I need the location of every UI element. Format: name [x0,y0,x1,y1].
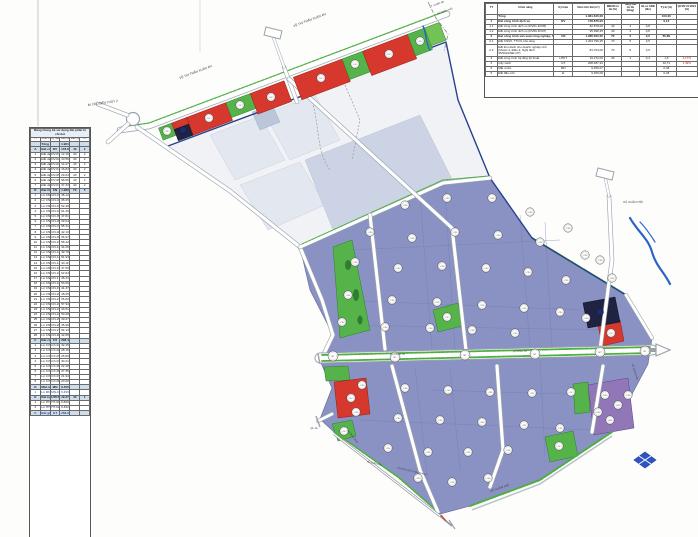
lot-symbol: CX [236,101,244,109]
table-cell [657,45,676,57]
lot-symbol: CN [478,418,486,426]
table-cell: GT [50,411,60,416]
svg-text:DV: DV [269,97,273,99]
lot-symbol: CN [478,301,486,309]
lot-symbol: CN [482,264,490,272]
svg-text:DV: DV [349,398,353,400]
svg-text:CN: CN [530,393,534,395]
lot-symbol: CN [520,421,528,429]
svg-text:CN: CN [522,425,526,427]
lot-symbol: CN [488,194,496,202]
lot-symbol: DN [594,408,602,416]
svg-text:CN: CN [598,260,602,262]
svg-text:DV: DV [319,78,323,80]
lot-symbol: DV [607,329,615,337]
table-cell: 81.704,00 [573,45,604,57]
table-cell: Đất giao thông [40,411,50,416]
lot-symbol: NT [460,350,470,360]
lot-symbol: CN [581,251,589,259]
svg-text:CN: CN [470,330,474,332]
svg-text:CX: CX [353,64,357,66]
lot-symbol: CN [401,384,409,392]
lot-statistics-table: Bảng thống kê sử dụng đất phân lô chi ti… [29,127,91,537]
landuse-balance-table: TTChức năngKý hiệuDiện tích đất (m²)MĐXD… [484,2,698,98]
table-cell: 9.456,00 [573,72,604,77]
table-cell: 5 [622,45,640,57]
svg-text:DV: DV [387,54,391,56]
svg-text:CN: CN [564,280,568,282]
svg-text:CN: CN [403,388,407,390]
lot-symbol: DV [385,50,393,58]
table-cell [80,411,90,416]
top-col-header: Hệ số SDĐ (lần) [639,4,657,15]
lot-symbol: CN [366,228,374,236]
lot-symbol: NT [640,346,650,356]
lot-symbol: CN [401,201,409,209]
svg-text:CN: CN [403,205,407,207]
lot-symbol: CN [464,448,472,456]
svg-text:CN: CN [526,272,530,274]
svg-text:CX: CX [165,131,169,133]
lot-symbol: DV [205,114,213,122]
lot-symbol: CN [526,208,534,216]
svg-text:CN: CN [490,198,494,200]
lot-symbol: CN [528,389,536,397]
lot-symbol: CN [451,228,459,236]
svg-text:CN: CN [435,302,439,304]
top-col-header: Tầng cao tối đa (tầng) [622,4,640,15]
lot-symbol: CN [596,256,604,264]
lot-symbol: CN [520,304,528,312]
svg-text:CN: CN [396,418,400,420]
table-cell [554,45,573,57]
svg-text:CN: CN [484,268,488,270]
map-label: VỀ THỊ TRẤN XUÂN AN [292,11,327,28]
lot-symbol: CN [494,231,502,239]
svg-text:CN: CN [440,266,444,268]
lot-symbol: CX [567,388,575,396]
table-cell: 2.2 [486,45,498,57]
lot-symbol: CN [351,258,359,266]
svg-text:CN: CN [566,228,570,230]
lot-symbol: DV [317,74,325,82]
lot-symbol: CN [408,234,416,242]
lot-symbol: CN [344,291,352,299]
svg-text:CX: CX [342,431,346,433]
lot-symbol: CN [443,194,451,202]
lot-symbol: DN [614,401,622,409]
lot-symbol: CN [394,264,402,272]
lot-symbol: CN [564,224,572,232]
top-table-header: TTChức năngKý hiệuDiện tích đất (m²)MĐXD… [486,4,698,15]
lot-symbol: CN [448,478,456,486]
svg-text:DN: DN [616,405,620,407]
table-row: 2.2Đất khu dành cho doanh nghiệp nhỏ (kh… [486,45,698,57]
lot-symbol: CN [394,414,402,422]
svg-text:CN: CN [528,212,532,214]
lot-symbol: CN [352,408,360,416]
table-cell [622,72,640,77]
lot-symbol: CN [358,381,366,389]
svg-text:CX: CX [238,105,242,107]
svg-text:CN: CN [558,312,562,314]
lot-symbol: CX [416,37,424,45]
lot-symbol: CN [438,262,446,270]
table-cell: Đất khu dành cho doanh nghiệp nhỏ (khoản… [497,45,553,57]
svg-text:CN: CN [396,268,400,270]
table-cell: Đất đầu mối [497,72,553,77]
lot-symbol: CN [524,268,532,276]
top-col-header: TT [486,4,498,15]
svg-text:CN: CN [522,308,526,310]
table-cell: 6 [486,72,498,77]
table-cell [676,72,697,77]
lot-symbol: CX [555,442,563,450]
table-cell [70,411,80,416]
svg-text:CN: CN [626,395,630,397]
lot-symbol: CN [562,276,570,284]
svg-text:CN: CN [486,478,490,480]
svg-text:DV: DV [207,118,211,120]
lot-symbol: CN [556,308,564,316]
logo-diamond [634,452,656,468]
table-cell [639,72,657,77]
lot-symbol: CN [433,298,441,306]
svg-text:CN: CN [538,242,542,244]
svg-text:CN: CN [450,482,454,484]
lot-symbol: DN [606,416,614,424]
table-row: FĐất giao thôngGT258.054,00 [31,411,90,416]
svg-text:CN: CN [610,278,614,280]
table-row: 6Đất đầu mốiĐ9.456,000,48 [486,72,698,77]
table-cell [604,72,622,77]
lot-symbol: DV [267,93,275,101]
svg-text:CN: CN [383,327,387,329]
lot-symbol: CN [384,444,392,452]
table-cell: F [31,411,41,416]
svg-text:DV: DV [609,333,613,335]
lot-symbol: CN [504,446,512,454]
lot-symbol: CX [443,313,451,321]
lot-symbol: NT [530,349,540,359]
top-col-header: Chức năng [497,4,553,15]
top-col-header: MĐXD tối đa (%) [604,4,622,15]
lot-symbol: CN [388,296,396,304]
top-col-header: QCVN 01:2021 (%) [676,4,697,15]
svg-text:CN: CN [340,322,344,324]
svg-text:CX: CX [569,392,573,394]
svg-text:CX: CX [445,317,449,319]
table-cell: Đ [554,72,573,77]
svg-text:CN: CN [445,198,449,200]
svg-text:CN: CN [360,385,364,387]
lot-symbol: CN [608,274,616,282]
svg-text:DN: DN [608,420,612,422]
lot-symbol: NT [328,351,338,361]
svg-text:CN: CN [390,300,394,302]
top-col-header: Tỷ lệ (%) [657,4,676,15]
svg-text:CN: CN [480,305,484,307]
lot-symbol: HT [180,127,187,134]
svg-text:CN: CN [480,422,484,424]
svg-text:CN: CN [416,478,420,480]
lot-symbol: CN [468,326,476,334]
lot-symbol: CN [444,386,452,394]
lot-symbol: CN [511,329,519,337]
svg-text:CN: CN [583,255,587,257]
lot-symbol: CN [486,388,494,396]
svg-text:CN: CN [353,262,357,264]
lot-symbol: CN [424,448,432,456]
table-cell: 70 [604,45,622,57]
lot-symbol: CN [436,416,444,424]
lot-symbol: CN [556,424,564,432]
planning-map-sheet: CXHTDVCXDVDVCXDVCXCNCNCNCNCNCNCNCNCNCNCN… [0,0,698,537]
svg-text:CN: CN [346,295,350,297]
svg-text:CN: CN [558,428,562,430]
lot-symbol: CN [624,391,632,399]
svg-text:DN: DN [603,395,607,397]
map-label: XÃ XUÂN HỘI [623,199,643,204]
lot-symbol: CX [163,127,171,135]
svg-text:CN: CN [506,450,510,452]
lot-symbol: CN [426,324,434,332]
lot-symbol: CN [582,314,590,322]
top-col-header: Ký hiệu [554,4,573,15]
svg-text:CX: CX [418,41,422,43]
svg-text:CN: CN [438,420,442,422]
svg-text:CN: CN [453,232,457,234]
svg-text:CN: CN [496,235,500,237]
svg-text:CN: CN [513,333,517,335]
svg-text:CN: CN [386,448,390,450]
svg-text:CN: CN [488,392,492,394]
svg-text:CN: CN [426,452,430,454]
lot-symbol: DV [347,394,355,402]
svg-text:CN: CN [410,238,414,240]
svg-text:CN: CN [446,390,450,392]
svg-text:CN: CN [466,452,470,454]
svg-text:CN: CN [428,328,432,330]
svg-text:CN: CN [584,318,588,320]
table-cell: 3,5 [639,45,657,57]
lot-symbol: CX [351,60,359,68]
map-label: TT. XUÂN AN [428,0,445,9]
svg-text:DN: DN [596,412,600,414]
lot-symbol: DN [601,391,609,399]
svg-text:CN: CN [354,412,358,414]
lot-symbol: CN [536,238,544,246]
map-label: QL 1A [310,426,318,430]
svg-text:CX: CX [557,446,561,448]
lot-symbol: CN [381,323,389,331]
table-cell: 0,48 [657,72,676,77]
lot-symbol: CN [338,318,346,326]
lot-symbol: HT [597,309,604,316]
lot-symbol: NT [595,347,605,357]
table-cell: 258.054,00 [60,411,70,416]
map-label: VỀ THỊ TRẤN XUÂN AN [178,63,213,80]
svg-text:CN: CN [368,232,372,234]
top-col-header: Diện tích đất (m²) [573,4,604,15]
lot-symbol: CN [484,474,492,482]
table-cell [676,45,697,57]
left-table-title: Bảng thống kê sử dụng đất phân lô chi ti… [31,129,90,138]
